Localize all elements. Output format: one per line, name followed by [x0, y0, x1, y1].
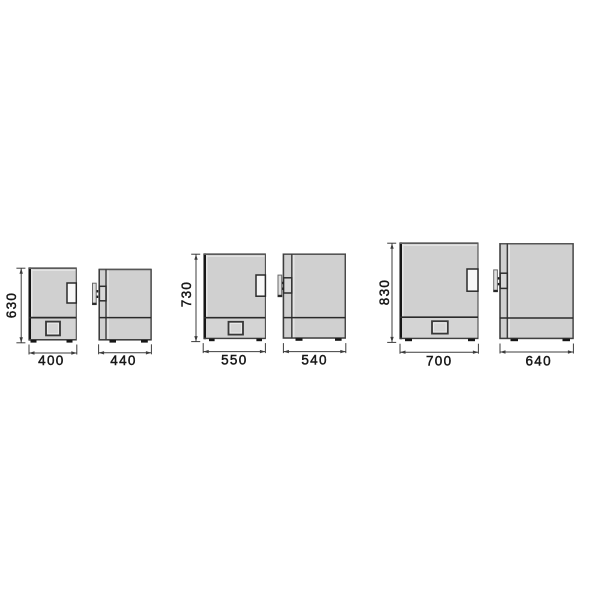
- svg-text:830: 830: [377, 279, 392, 305]
- svg-text:700: 700: [426, 353, 452, 368]
- svg-text:550: 550: [221, 352, 247, 367]
- svg-text:730: 730: [179, 281, 194, 307]
- svg-text:640: 640: [525, 353, 551, 368]
- svg-text:400: 400: [38, 353, 64, 368]
- svg-text:630: 630: [4, 292, 19, 318]
- svg-text:540: 540: [301, 352, 327, 367]
- svg-text:440: 440: [110, 353, 136, 368]
